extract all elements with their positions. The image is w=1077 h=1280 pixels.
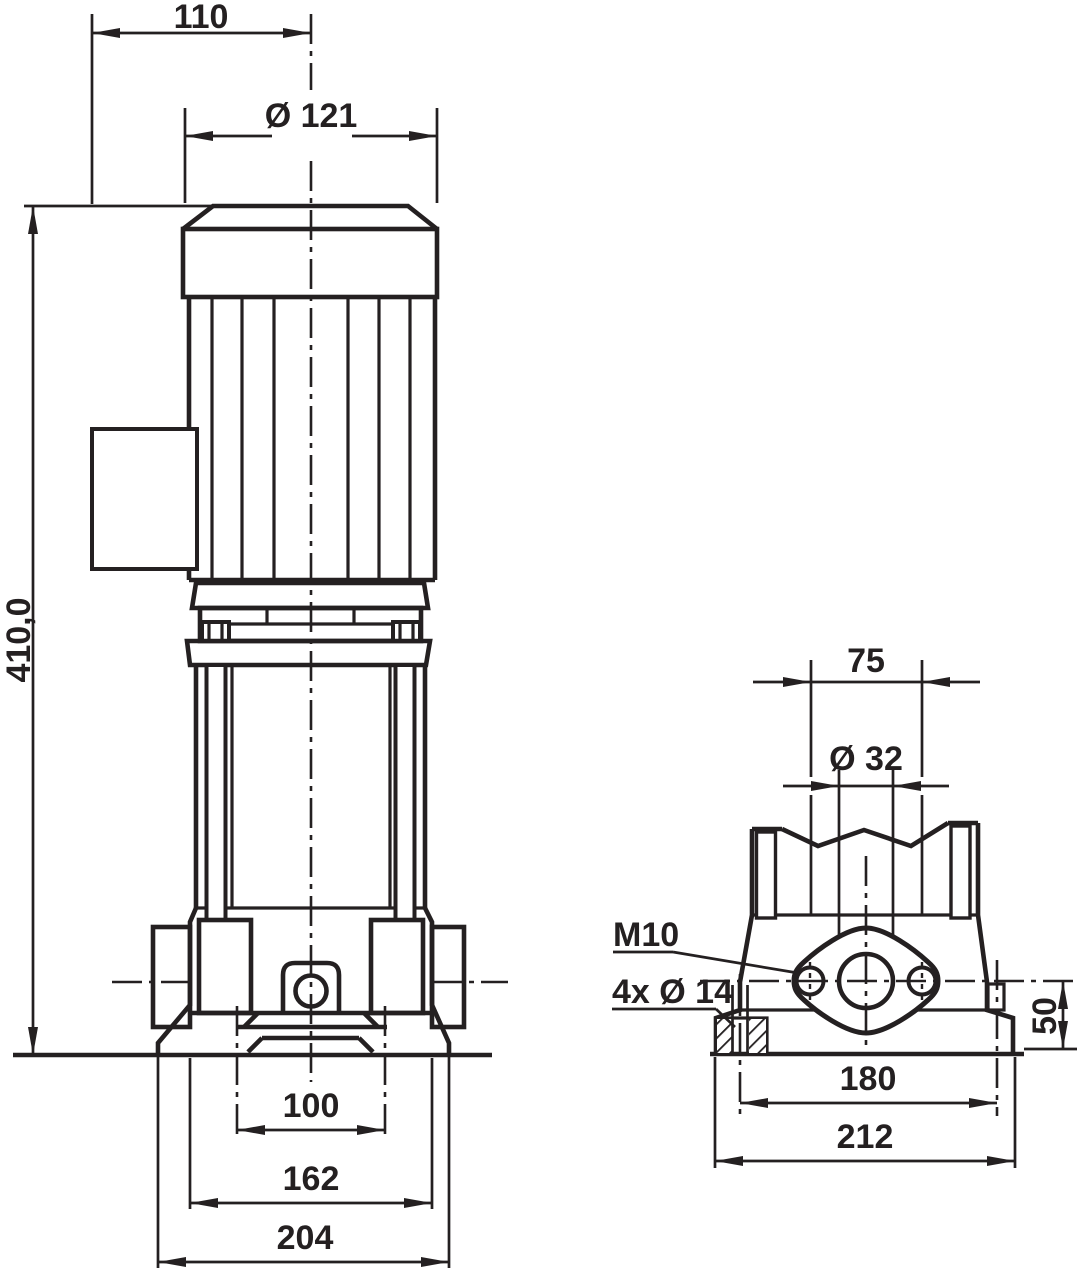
pump-base <box>13 908 508 1136</box>
dim-label-180: 180 <box>840 1060 897 1098</box>
front-view: 110 Ø 121 410,0 100 162 <box>0 0 508 1268</box>
motor-adapter <box>187 583 430 665</box>
dim-port-spacing: 75 <box>753 642 980 682</box>
foot-hatch-left <box>717 1019 732 1053</box>
terminal-box <box>92 429 197 569</box>
foot-boss-left <box>199 920 251 1013</box>
motor-fins <box>189 297 435 580</box>
callout-thread: M10 <box>613 916 798 973</box>
dim-label-212: 212 <box>837 1118 894 1156</box>
dim-label-50: 50 <box>1026 997 1064 1035</box>
dim-port-height: 50 <box>1024 981 1077 1049</box>
flange-bolt-left <box>202 622 229 641</box>
foot-hatch-right <box>749 1019 766 1053</box>
dim-foot-spacing: 180 <box>740 1060 997 1103</box>
tie-rod-left <box>207 665 226 920</box>
dim-label-162: 162 <box>283 1160 340 1198</box>
dim-foot-hole-spacing: 100 <box>237 1087 385 1130</box>
dim-port-diameter: Ø 32 <box>783 740 949 795</box>
label-4xd14: 4x Ø 14 <box>612 973 733 1011</box>
motor <box>92 206 437 580</box>
flange-bolt-right <box>393 622 420 641</box>
pump-technical-drawing: 110 Ø 121 410,0 100 162 <box>0 0 1077 1280</box>
foot-boss-right <box>371 920 423 1013</box>
dim-label-100: 100 <box>283 1087 340 1125</box>
dim-label-75: 75 <box>847 642 885 680</box>
label-m10: M10 <box>613 916 679 954</box>
dim-label-204: 204 <box>277 1219 334 1257</box>
tie-rod-section-right <box>951 826 970 918</box>
tie-rod-right <box>396 665 415 920</box>
dim-label-410: 410,0 <box>0 597 38 682</box>
dim-label-110: 110 <box>174 0 229 36</box>
dim-label-d32: Ø 32 <box>829 740 903 778</box>
tie-rod-section-left <box>757 832 776 918</box>
pump-head-band <box>187 641 430 665</box>
side-view: 75 Ø 32 M10 4x Ø 14 50 <box>612 642 1077 1168</box>
dim-label-d121: Ø 121 <box>265 97 358 135</box>
drawing-canvas: 110 Ø 121 410,0 100 162 <box>0 0 1077 1280</box>
leader-m10 <box>673 952 798 973</box>
